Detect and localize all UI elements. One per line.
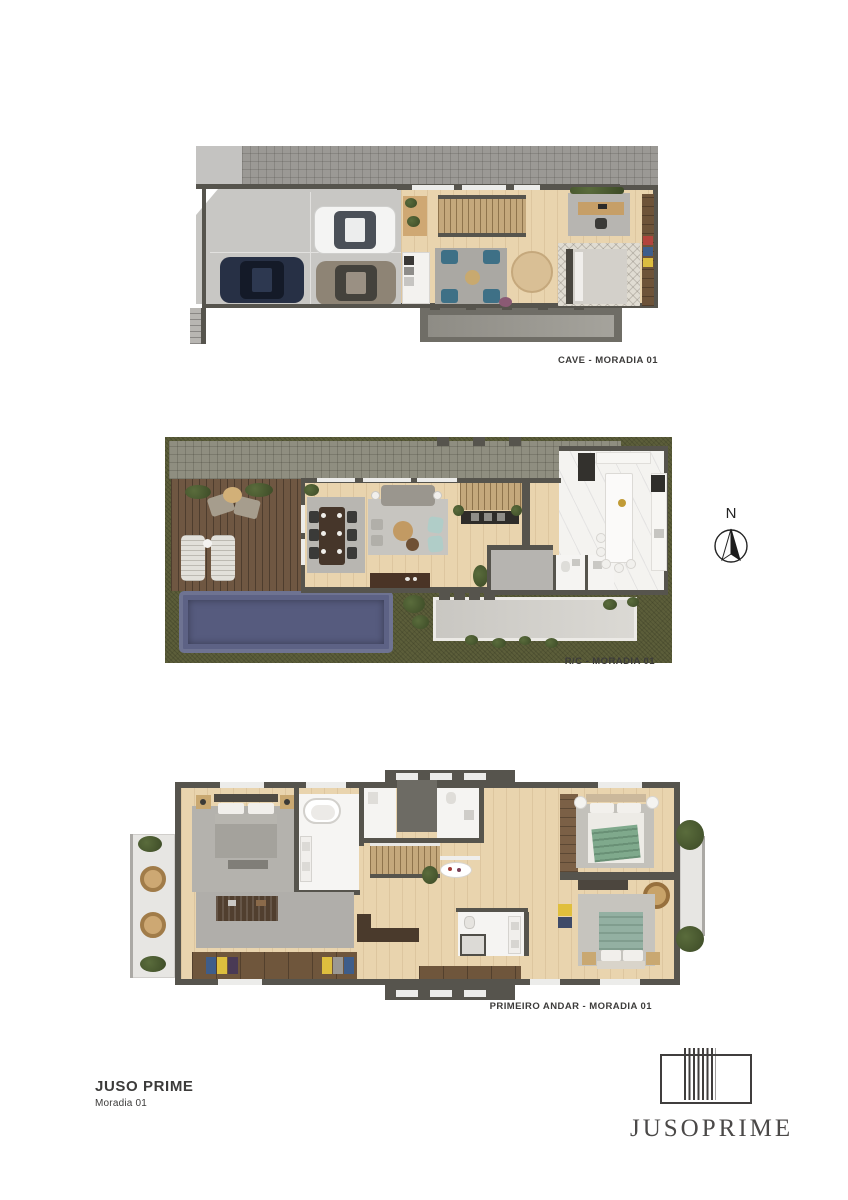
wall-bedrooms-divider — [560, 872, 680, 880]
window — [598, 782, 642, 788]
armchair-teal — [483, 289, 500, 303]
pergola-post — [473, 437, 485, 446]
bed2-headboard — [586, 794, 646, 802]
toilet — [561, 561, 570, 572]
plant — [185, 485, 211, 499]
console-deco — [405, 577, 410, 581]
pillow — [248, 803, 274, 814]
unit-subtitle: Moradia 01 — [95, 1098, 194, 1109]
bed-bench — [228, 860, 268, 869]
cooktop — [484, 513, 492, 521]
stair-wall — [438, 233, 526, 237]
shrub — [465, 635, 478, 645]
window — [306, 782, 346, 788]
car-roof — [346, 272, 365, 295]
plant-large — [676, 820, 704, 850]
wall-left-boundary — [202, 189, 206, 308]
place-setting — [337, 513, 342, 518]
pouf — [371, 519, 383, 530]
shrub — [545, 638, 558, 648]
washbasin — [511, 922, 519, 930]
window — [417, 478, 457, 482]
paved-driveway — [169, 441, 621, 479]
staircase — [438, 199, 526, 233]
kitchen-counter-top — [596, 452, 651, 464]
bathtub — [303, 798, 341, 824]
place-setting — [321, 549, 326, 554]
sink — [572, 559, 580, 566]
plant-tall — [473, 565, 488, 587]
jusoprime-logo: JUSOPRIME — [630, 1054, 782, 1143]
plant — [407, 216, 420, 227]
bench-L-horizontal — [357, 928, 419, 942]
oval-rug — [440, 862, 472, 878]
car-roof — [252, 268, 272, 292]
pendant-lamp — [618, 499, 626, 507]
bed3-headboard — [597, 961, 645, 969]
logo-mark-icon — [660, 1054, 752, 1104]
wall-wc-right — [479, 788, 484, 840]
book-blue — [206, 957, 216, 974]
tub-basin — [311, 805, 335, 820]
window — [363, 478, 411, 482]
sink — [464, 810, 474, 820]
dining-chair — [309, 529, 319, 541]
floor-lamp — [371, 491, 380, 500]
dresser — [578, 880, 628, 890]
armchair-teal — [441, 289, 458, 303]
toilet — [446, 792, 456, 804]
window — [600, 979, 640, 985]
plant — [511, 505, 522, 516]
patio-floor — [428, 315, 614, 337]
bar-stool — [626, 559, 636, 569]
pergola-post — [509, 437, 521, 446]
plant — [245, 483, 273, 497]
powder-room — [556, 555, 585, 590]
shrub — [603, 599, 617, 610]
north-compass: N — [708, 505, 754, 568]
window — [530, 979, 560, 985]
wall-left-lower — [201, 308, 206, 344]
flower-pot — [499, 297, 512, 307]
sheet-title-block: JUSO PRIME Moradia 01 — [95, 1078, 194, 1109]
pergola-post — [437, 437, 449, 446]
wicker-chair — [140, 866, 166, 892]
window — [464, 990, 486, 997]
car-roof — [345, 218, 364, 242]
entry-hall-floor — [491, 550, 553, 590]
armchair-blue — [427, 516, 444, 534]
bar-stool — [601, 559, 611, 569]
floorplan-sheet: { "plans": [ { "caption": "CAVE - MORADI… — [0, 0, 848, 1200]
sidewalk-strip — [196, 146, 242, 186]
window — [396, 990, 418, 997]
floorplan-rc — [165, 437, 672, 663]
pillow — [601, 950, 621, 961]
patio-step — [484, 592, 495, 600]
washbasin — [302, 842, 310, 851]
rattan-table — [223, 487, 242, 503]
washbasin — [302, 862, 310, 871]
place-setting — [337, 531, 342, 536]
stairwell-core — [397, 780, 437, 832]
wall-living-left — [301, 482, 305, 590]
pool-water — [188, 600, 384, 644]
bed3-duvet — [599, 912, 643, 950]
sun-lounger — [211, 535, 235, 581]
rug-motif — [457, 868, 461, 872]
window — [317, 478, 355, 482]
plant-large — [676, 926, 704, 952]
plant — [138, 836, 162, 852]
logo-wordmark: JUSOPRIME — [630, 1115, 782, 1143]
stove — [651, 475, 665, 492]
glass-door — [301, 505, 305, 533]
place-setting — [337, 549, 342, 554]
window — [396, 773, 418, 780]
sofa — [381, 485, 435, 506]
round-table — [511, 251, 553, 293]
bed-pillows — [575, 252, 583, 301]
cooktop — [471, 513, 479, 521]
pillow — [623, 950, 643, 961]
caption-primeiro-andar: PRIMEIRO ANDAR - MORADIA 01 — [490, 1001, 652, 1012]
landing-shelf — [440, 856, 480, 860]
pillow — [590, 803, 614, 813]
dining-chair — [347, 529, 357, 541]
place-setting — [321, 513, 326, 518]
swimming-pool — [179, 591, 393, 653]
balcony-rail — [130, 834, 133, 978]
bed2-throw-green — [591, 825, 640, 863]
dining-chair — [347, 511, 357, 523]
console-woven — [216, 896, 278, 921]
compass-rose-icon — [708, 526, 754, 568]
desk-chair — [595, 218, 607, 229]
washbasin — [511, 940, 519, 948]
console-deco — [256, 900, 266, 906]
nightstand — [646, 952, 660, 965]
armchair-blue — [427, 535, 444, 552]
closet-strip — [419, 966, 521, 979]
accent-yellow — [558, 904, 572, 916]
logo-stripes-icon — [684, 1048, 716, 1100]
window — [514, 185, 540, 190]
book-yellow — [322, 957, 332, 974]
book-purple — [228, 957, 238, 974]
lamp — [284, 799, 290, 805]
wall-kitchen-top — [559, 446, 668, 451]
toilet — [464, 916, 475, 929]
bar-stool — [596, 547, 606, 557]
north-label: N — [708, 505, 754, 522]
stall-line-v — [310, 192, 311, 304]
caption-cave: CAVE - MORADIA 01 — [558, 355, 658, 366]
shrub — [492, 638, 506, 648]
sun-lounger — [181, 535, 205, 581]
accent-blue — [558, 917, 572, 928]
wicker-chair — [140, 912, 166, 938]
shower — [460, 934, 486, 956]
bar-stool — [596, 533, 606, 543]
window — [462, 185, 506, 190]
pillow — [218, 803, 244, 814]
plant — [405, 198, 417, 208]
book-red — [643, 236, 653, 245]
car-white — [314, 206, 396, 254]
console-deco — [413, 577, 417, 581]
nightstand-round — [646, 796, 659, 809]
window — [220, 782, 264, 788]
bar-stool — [614, 563, 624, 573]
book-blue — [643, 247, 653, 256]
pillow — [617, 803, 641, 813]
monitor — [598, 204, 607, 209]
window — [218, 979, 262, 985]
shrub — [519, 636, 531, 645]
appliance — [404, 277, 414, 286]
plant-shelf — [570, 187, 624, 194]
console-deco — [228, 900, 236, 906]
window — [412, 185, 454, 190]
plant — [304, 484, 319, 496]
floorplan-cave — [196, 140, 658, 345]
window — [430, 990, 452, 997]
kitchen-island — [605, 473, 633, 563]
bed-headboard — [566, 249, 573, 304]
fridge — [578, 453, 595, 481]
plant — [422, 866, 438, 884]
nightstand-round — [574, 796, 587, 809]
dining-chair — [347, 547, 357, 559]
cooktop — [497, 513, 505, 521]
place-setting — [321, 531, 326, 536]
balcony-rail — [702, 836, 705, 936]
side-table — [203, 539, 212, 548]
project-title: JUSO PRIME — [95, 1078, 194, 1095]
patio-step — [439, 592, 450, 600]
wall-rooms-bottom — [487, 590, 668, 595]
pouf — [371, 535, 383, 546]
nightstand — [582, 952, 596, 965]
duvet-fold — [215, 814, 277, 824]
shrub — [627, 597, 639, 607]
dining-chair — [309, 511, 319, 523]
shower-tray — [368, 792, 378, 804]
armchair-teal — [441, 250, 458, 264]
book-yellow — [217, 957, 227, 974]
appliance — [404, 256, 414, 265]
book-yellow — [643, 258, 653, 267]
glass-door — [301, 539, 305, 565]
paved-courtyard — [242, 146, 658, 186]
window — [464, 773, 486, 780]
kitchen-sink — [654, 529, 664, 538]
appliance — [404, 267, 414, 275]
wall-garage-bottom — [202, 304, 402, 308]
book-blue — [344, 957, 354, 974]
patio-step — [469, 592, 480, 600]
dining-chair — [309, 547, 319, 559]
rug-motif — [448, 867, 452, 871]
plant-large — [403, 595, 425, 613]
lamp — [200, 799, 206, 805]
bed-headboard — [214, 794, 278, 802]
floorplan-primeiro-andar — [130, 770, 708, 1002]
plant — [140, 956, 166, 972]
stone-wall-strip — [190, 308, 201, 344]
coffee-table — [465, 270, 480, 285]
patio-step — [454, 592, 465, 600]
car-brown — [316, 261, 396, 305]
window — [430, 773, 452, 780]
plant-large — [412, 615, 429, 629]
coffee-table-small — [406, 538, 419, 551]
book-gray — [333, 957, 343, 974]
armchair-teal — [483, 250, 500, 264]
car-navy — [220, 257, 304, 303]
wall-bath2-right — [524, 912, 529, 956]
plant — [453, 505, 464, 516]
caption-rc: R/C - MORADIA 01 — [565, 656, 655, 667]
media-console — [370, 573, 430, 588]
floor-lamp — [433, 491, 442, 500]
balcony-right — [680, 836, 704, 936]
